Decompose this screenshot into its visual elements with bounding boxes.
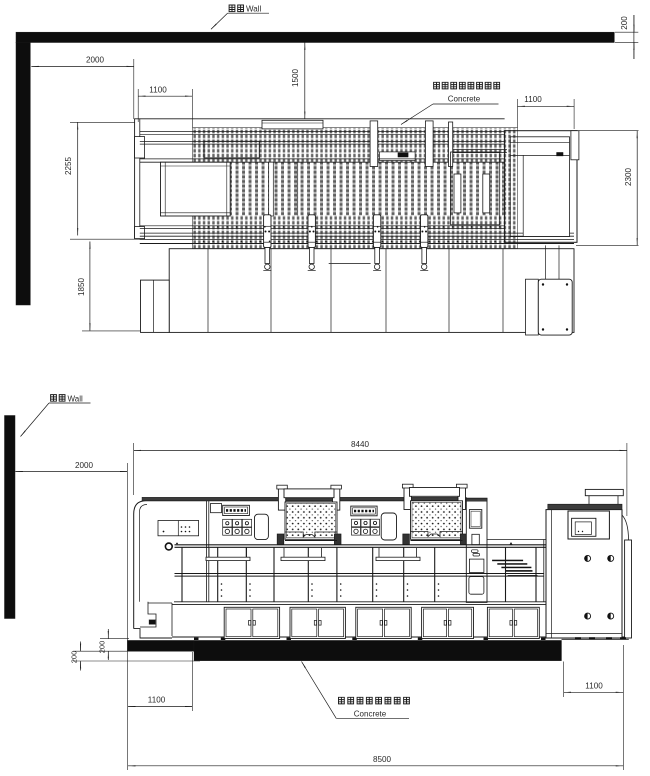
svg-text:1100: 1100	[585, 682, 603, 691]
svg-text:2000: 2000	[86, 56, 105, 65]
svg-text:Wall: Wall	[246, 5, 261, 14]
svg-text:8440: 8440	[351, 440, 370, 449]
svg-text:8500: 8500	[373, 755, 392, 764]
svg-text:Concrete: Concrete	[448, 95, 481, 104]
svg-text:1100: 1100	[524, 95, 542, 104]
svg-text:1500: 1500	[291, 69, 300, 88]
svg-text:1100: 1100	[149, 85, 167, 94]
svg-text:200: 200	[620, 16, 629, 30]
svg-text:Wall: Wall	[68, 394, 83, 403]
svg-text:1850: 1850	[77, 278, 86, 297]
svg-text:2300: 2300	[624, 168, 633, 187]
svg-text:1100: 1100	[148, 696, 166, 705]
svg-text:2255: 2255	[64, 157, 73, 176]
svg-text:200: 200	[70, 651, 79, 664]
svg-text:2000: 2000	[75, 461, 94, 470]
svg-text:Concrete: Concrete	[354, 710, 387, 719]
